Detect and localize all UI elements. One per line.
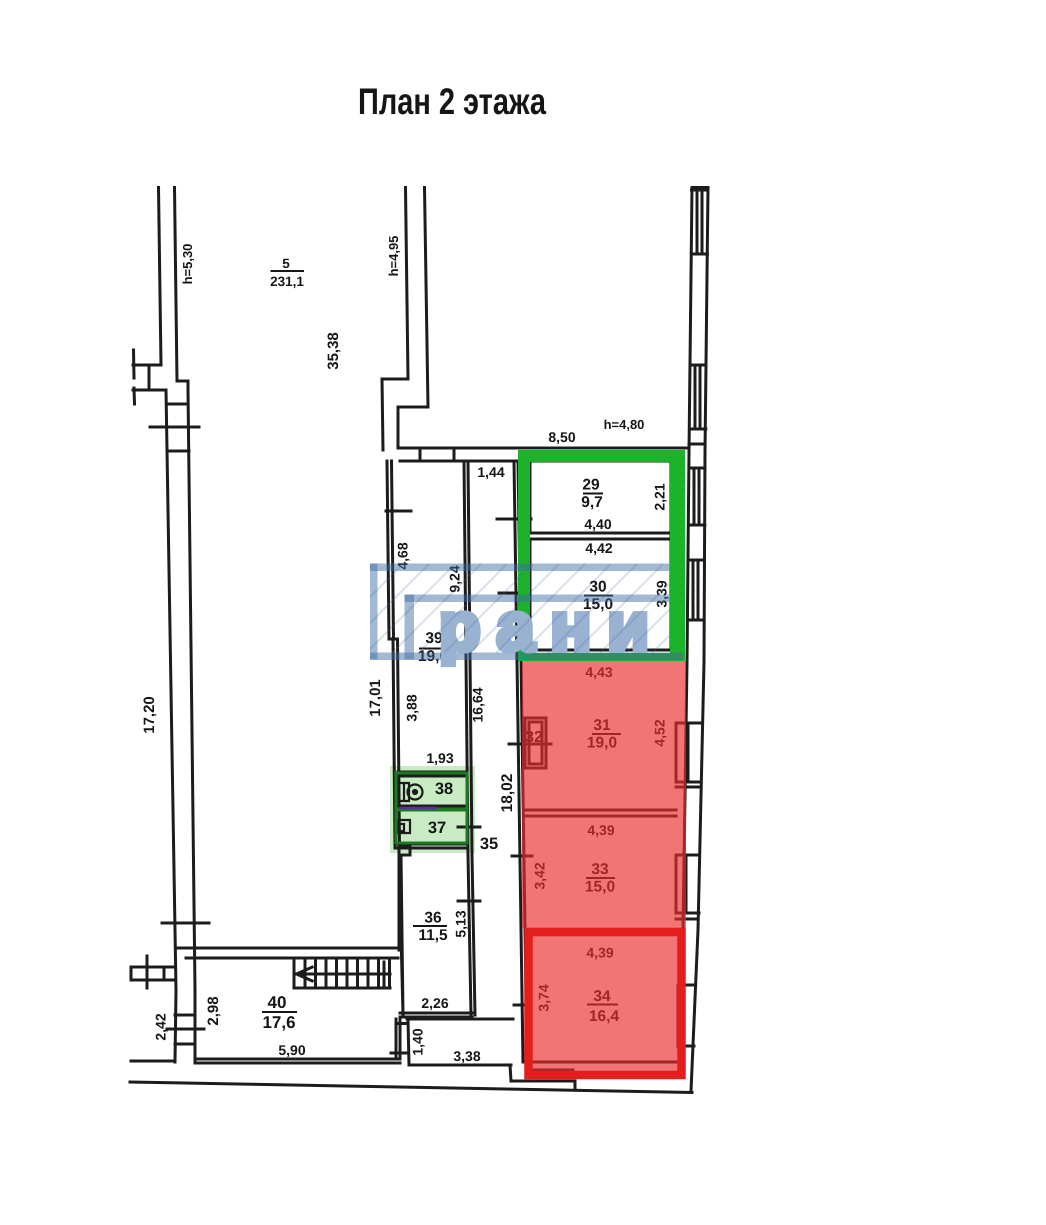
svg-text:38: 38 bbox=[435, 780, 453, 798]
svg-text:231,1: 231,1 bbox=[270, 274, 304, 289]
svg-text:1,44: 1,44 bbox=[477, 464, 504, 480]
svg-text:5,90: 5,90 bbox=[278, 1042, 305, 1058]
svg-text:18,02: 18,02 bbox=[499, 774, 516, 813]
svg-text:2,98: 2,98 bbox=[205, 996, 222, 1025]
svg-text:2,42: 2,42 bbox=[153, 1013, 169, 1040]
svg-text:35,38: 35,38 bbox=[325, 332, 342, 370]
svg-text:35: 35 bbox=[480, 835, 498, 853]
svg-text:5: 5 bbox=[282, 256, 290, 271]
svg-text:h=4,95: h=4,95 bbox=[386, 236, 401, 277]
svg-text:4,42: 4,42 bbox=[585, 540, 612, 556]
svg-text:40: 40 bbox=[268, 993, 287, 1012]
svg-text:17,20: 17,20 bbox=[141, 696, 158, 734]
svg-text:36: 36 bbox=[424, 910, 442, 927]
svg-text:3,38: 3,38 bbox=[453, 1048, 480, 1064]
svg-text:5,13: 5,13 bbox=[453, 910, 469, 937]
svg-text:17,6: 17,6 bbox=[262, 1013, 295, 1032]
svg-text:37: 37 bbox=[428, 819, 446, 837]
svg-text:4,40: 4,40 bbox=[584, 516, 611, 532]
svg-text:2,21: 2,21 bbox=[652, 483, 668, 510]
svg-text:9,7: 9,7 bbox=[581, 494, 603, 511]
svg-text:17,01: 17,01 bbox=[367, 679, 384, 717]
svg-text:h=4,80: h=4,80 bbox=[604, 417, 645, 432]
svg-text:3,88: 3,88 bbox=[404, 694, 420, 721]
svg-text:11,5: 11,5 bbox=[418, 927, 448, 944]
svg-text:h=5,30: h=5,30 bbox=[180, 244, 195, 285]
svg-text:1,40: 1,40 bbox=[410, 1028, 426, 1055]
svg-text:2,26: 2,26 bbox=[421, 995, 448, 1011]
svg-text:16,64: 16,64 bbox=[470, 687, 486, 722]
svg-text:8,50: 8,50 bbox=[548, 429, 575, 445]
svg-text:1,93: 1,93 bbox=[426, 750, 453, 766]
svg-text:29: 29 bbox=[582, 477, 600, 494]
svg-text:План 2 этажа: План 2 этажа bbox=[358, 81, 546, 122]
